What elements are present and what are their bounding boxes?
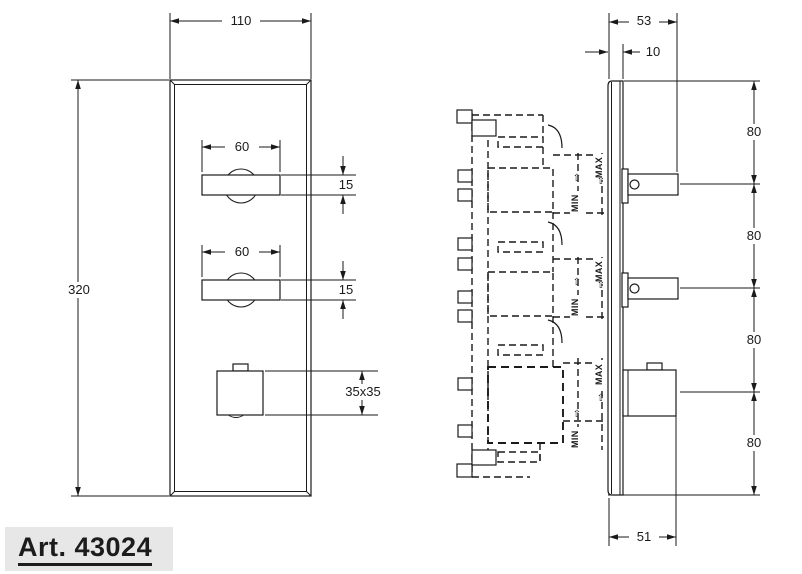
dim-diverter-depth: 51 — [629, 529, 659, 545]
cartridge-middle — [488, 272, 553, 316]
min-label-1: MIN — [570, 191, 582, 215]
concealed-body-solid — [457, 110, 562, 477]
technical-drawing-svg — [0, 0, 802, 574]
side-diverter-knob — [623, 370, 676, 416]
front-knob-tab — [233, 364, 248, 371]
dim-handle-width-top: 60 — [225, 139, 259, 155]
pipe-union — [458, 170, 472, 182]
max-arrow-icon-2: ⇧ — [595, 281, 607, 291]
dim-overall-height: 320 — [60, 282, 98, 298]
handle-screw-top — [630, 180, 639, 189]
dim-spacing-3: 80 — [740, 332, 768, 348]
side-plate — [608, 81, 623, 495]
cartridge-top — [488, 168, 553, 212]
dim-spacing-1: 80 — [740, 124, 768, 140]
max-arrow-icon-3: ⇧ — [595, 394, 607, 404]
side-rosette-top — [622, 169, 628, 203]
side-knob-tab — [647, 363, 662, 370]
front-diverter-knob — [217, 371, 263, 415]
handle-screw-middle — [630, 284, 639, 293]
dim-overall-width: 110 — [222, 13, 260, 29]
dim-handle-width-middle: 60 — [225, 244, 259, 260]
concealed-body-dashed — [472, 113, 607, 477]
side-rosette-middle — [622, 273, 628, 307]
min-arrow-icon-1: ⇧ — [571, 174, 583, 184]
front-handle-middle — [202, 280, 280, 300]
min-label-3: MIN — [570, 427, 582, 451]
min-arrow-icon-3: ⇧ — [571, 410, 583, 420]
max-arrow-icon-1: ⇧ — [595, 177, 607, 187]
dim-spacing-2: 80 — [740, 228, 768, 244]
dim-handle-height-top: 15 — [331, 177, 361, 193]
mounting-lug — [457, 110, 472, 123]
min-arrow-icon-2: ⇧ — [571, 278, 583, 288]
dim-diverter-size: 35x35 — [336, 384, 390, 400]
side-view-plate-group — [608, 81, 678, 495]
max-label-3: MAX — [594, 360, 606, 388]
dim-spacing-4: 80 — [740, 435, 768, 451]
min-label-2: MIN — [570, 295, 582, 319]
cartridge-bottom — [488, 367, 563, 443]
technical-drawing-canvas: 110 320 60 60 15 15 35x35 53 10 80 80 80… — [0, 0, 802, 574]
front-handle-top — [202, 175, 280, 195]
article-label-block: Art. 43024 — [5, 527, 173, 571]
dim-handle-height-middle: 15 — [331, 282, 361, 298]
dim-total-depth: 53 — [629, 13, 659, 29]
article-number: Art. 43024 — [18, 532, 152, 566]
pipe-elbow — [548, 125, 562, 148]
dim-plate-thickness: 10 — [640, 44, 666, 60]
